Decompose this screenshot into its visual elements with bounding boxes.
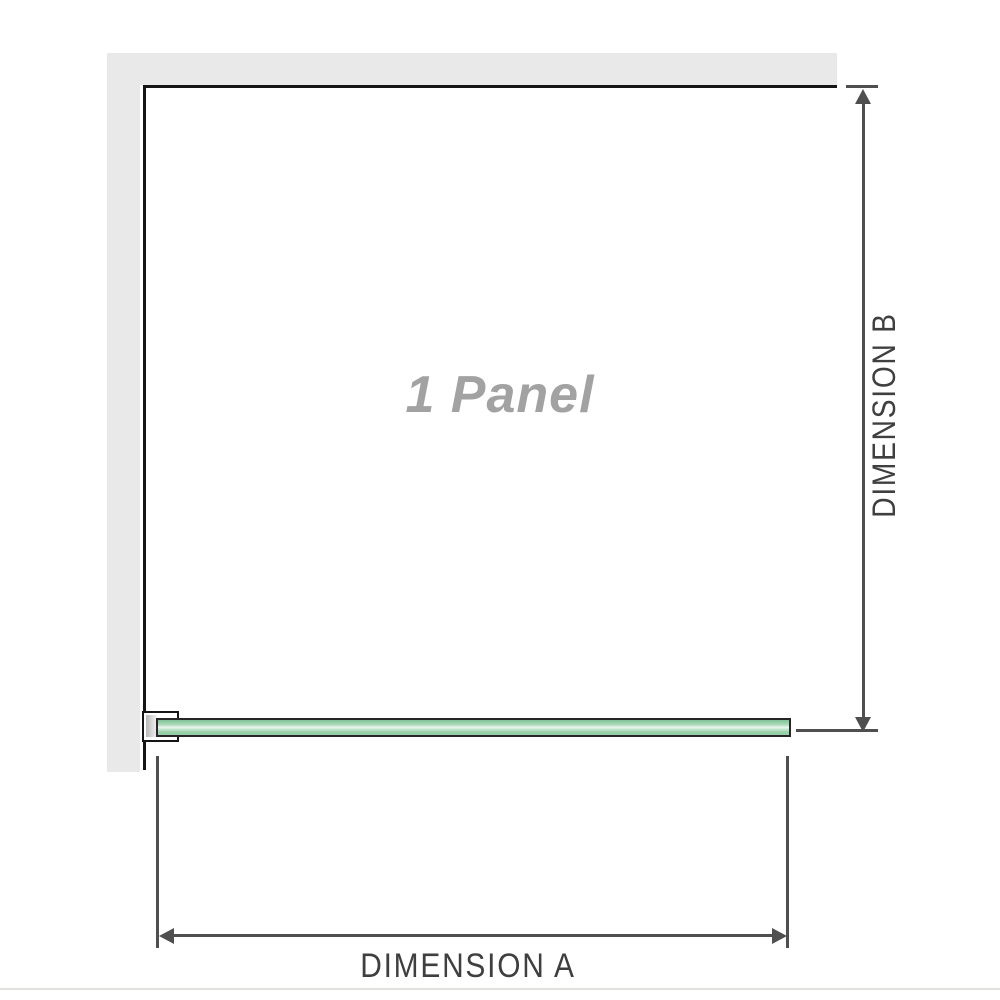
dimension-b-line: [862, 101, 865, 718]
wall-top-bar: [107, 53, 837, 85]
dimension-a-extension-left: [156, 756, 159, 948]
wall-left-bar: [107, 53, 140, 772]
dimension-b-label: DIMENSION B: [866, 239, 902, 591]
dimension-a-label: DIMENSION A: [248, 948, 688, 984]
arrow-right-icon: [772, 928, 787, 944]
dimension-a-line: [171, 934, 775, 937]
panel-top-border: [143, 85, 837, 88]
dimension-a-extension-right: [786, 756, 789, 948]
dimension-b-tick-bottom: [796, 729, 878, 732]
panel-count-label: 1 Panel: [300, 367, 700, 423]
dimension-b-tick-top: [846, 85, 878, 88]
bottom-rule: [0, 988, 1000, 990]
panel-left-border: [143, 85, 146, 770]
panel-dimension-diagram: 1 Panel DIMENSION B DIMENSION A: [0, 0, 1000, 1000]
shower-glass-panel: [156, 718, 791, 737]
